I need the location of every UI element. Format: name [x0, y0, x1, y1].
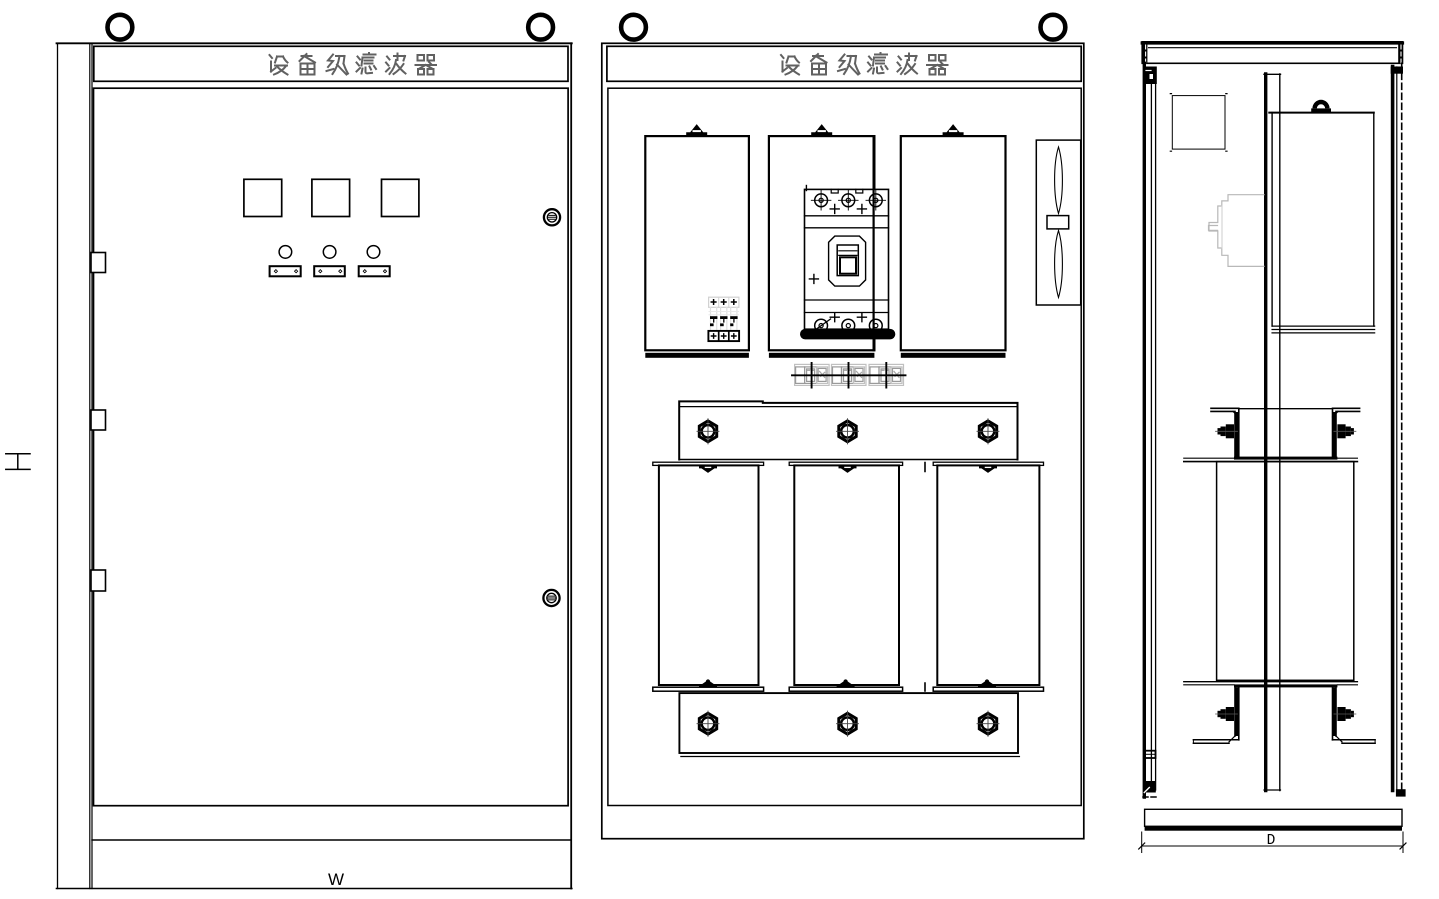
svg-text:D: D — [1267, 833, 1276, 849]
svg-text:W: W — [328, 870, 344, 889]
